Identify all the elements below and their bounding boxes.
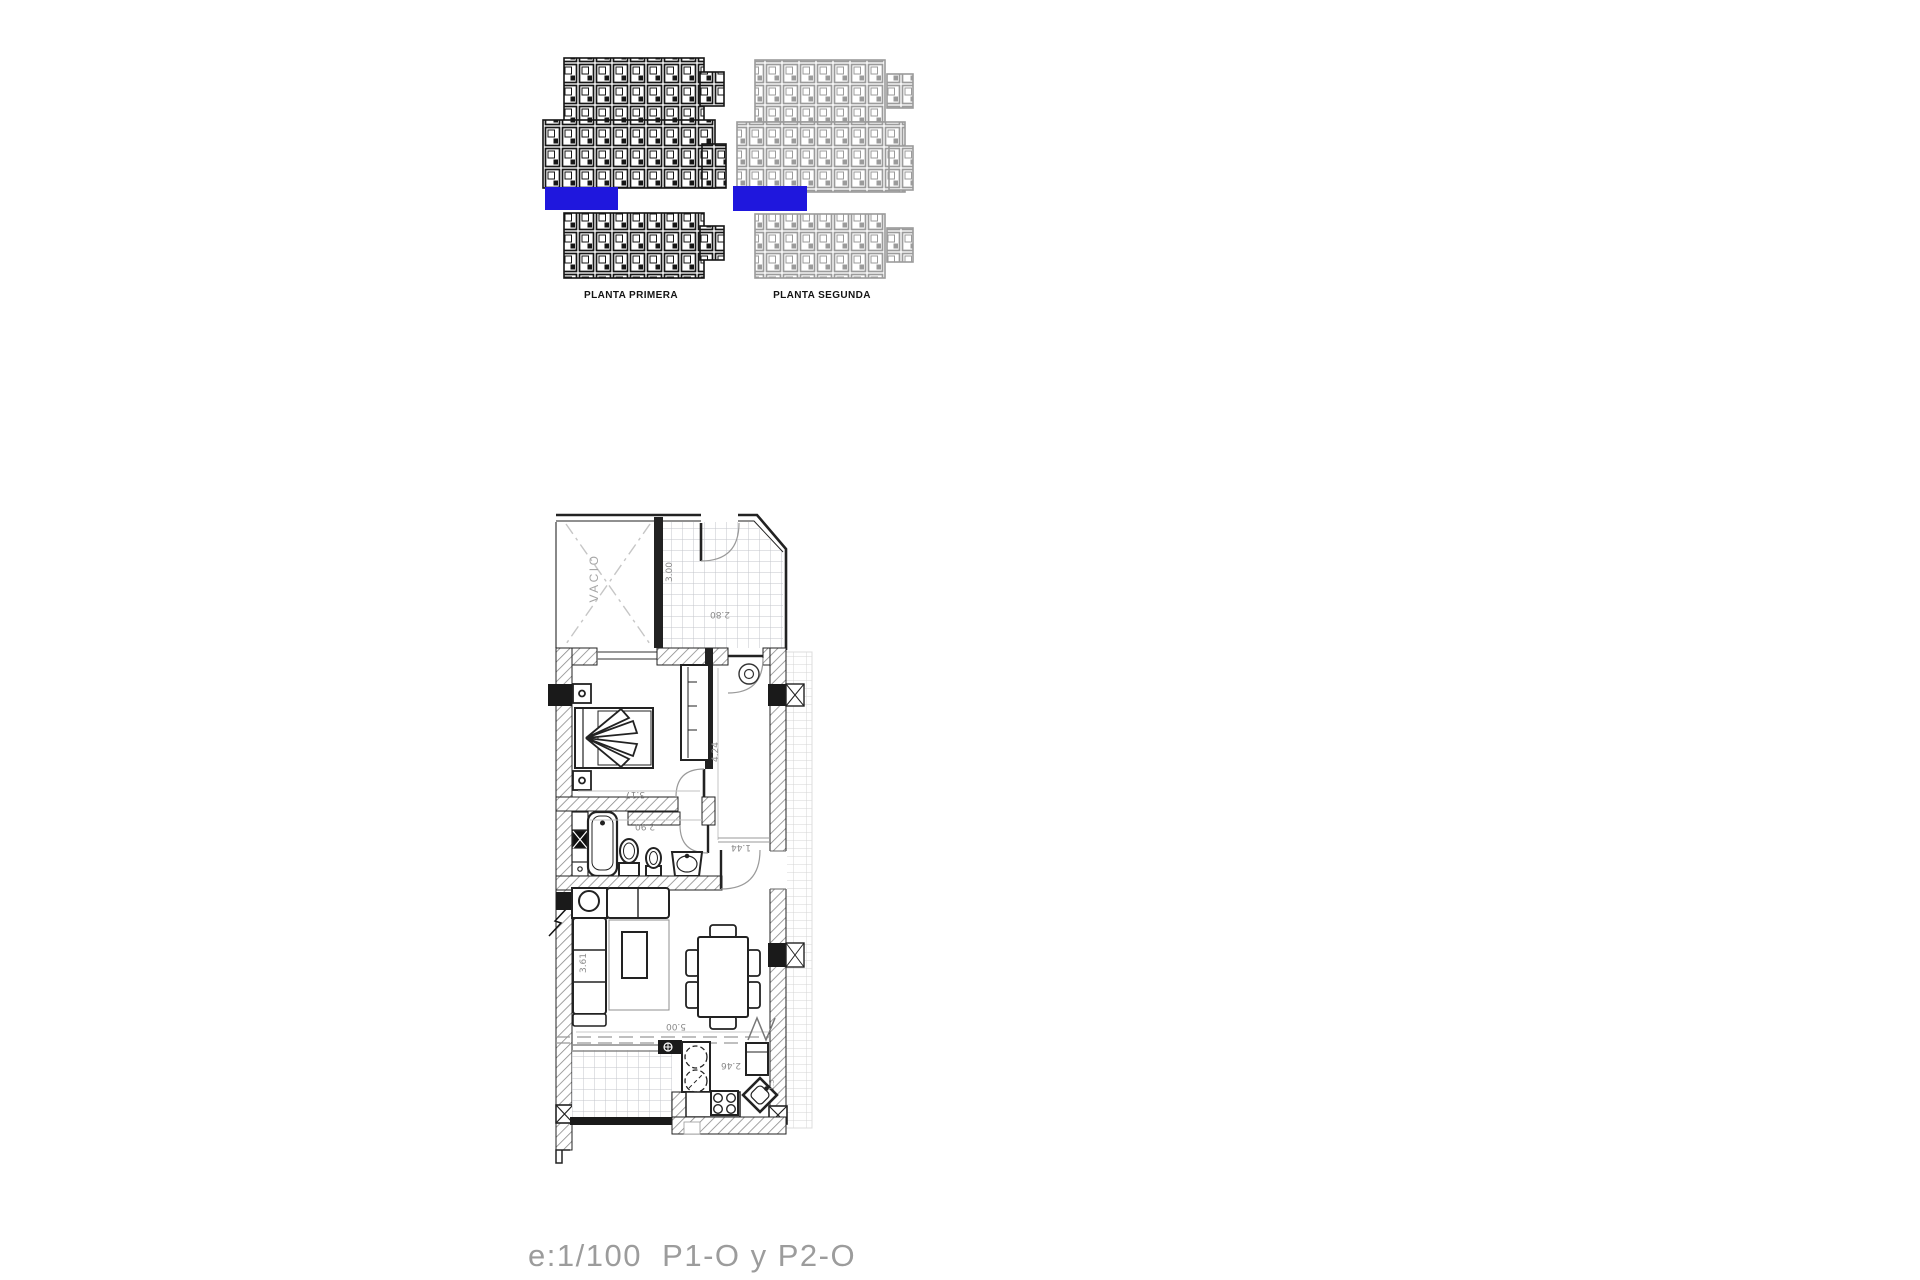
dining-table xyxy=(698,937,748,1017)
bathtub xyxy=(588,812,617,876)
exterior-walkway-tiles xyxy=(786,652,812,1128)
toilet xyxy=(619,839,639,876)
terrace-hall-door-arc xyxy=(728,658,763,693)
caption-planta-segunda: PLANTA SEGUNDA xyxy=(737,290,907,301)
bedroom: 3.17 xyxy=(556,648,715,825)
ceiling-light-icon xyxy=(739,664,759,684)
bidet xyxy=(646,848,661,876)
lower-terrace xyxy=(570,1040,682,1125)
dim-hall-length: 4.24 xyxy=(711,742,721,762)
bathroom-door-arc xyxy=(680,825,708,853)
kitchen: 2.46 1.5 xyxy=(672,1042,786,1134)
floor-plan-drawing: VACIO 3.00 2.80 xyxy=(0,0,1920,1280)
selected-unit-highlight-segunda xyxy=(733,186,807,211)
dim-kitchen-width: 2.46 xyxy=(721,1060,741,1070)
dim-bedroom-width: 3.17 xyxy=(625,789,645,799)
overview-plan-primera xyxy=(543,58,726,278)
caption-planta-primera: PLANTA PRIMERA xyxy=(546,290,716,301)
left-wall-foot-step xyxy=(556,1150,570,1163)
dining-set xyxy=(686,925,760,1029)
vacio-area: VACIO xyxy=(556,522,650,648)
bathroom-shelves xyxy=(572,812,588,876)
vacio-label: VACIO xyxy=(587,554,601,603)
scale-label: e:1/100 P1-O y P2-O xyxy=(528,1238,856,1274)
selected-unit-highlight-primera xyxy=(545,187,618,210)
bedroom-door-arc xyxy=(676,769,704,797)
bathroom: 2.90 xyxy=(556,812,722,890)
dim-bathroom-width: 2.90 xyxy=(635,821,655,831)
dim-terrace-width: 2.80 xyxy=(710,609,730,619)
sink xyxy=(672,852,702,876)
laundry-column xyxy=(682,1042,710,1092)
fridge xyxy=(746,1043,768,1075)
vacio-terrace-divider-wall xyxy=(654,517,663,648)
dim-living-depth: 3.61 xyxy=(579,953,589,973)
coffee-table xyxy=(622,932,647,978)
overview-plan-segunda xyxy=(737,60,913,278)
side-table xyxy=(572,888,607,918)
dim-kitchen-side: 1.5 xyxy=(768,1079,776,1090)
dim-terrace-depth: 3.00 xyxy=(665,562,675,582)
entry-door-arc xyxy=(721,850,760,889)
terrace-bottom-wall xyxy=(570,1117,673,1125)
entry-opening xyxy=(769,851,787,889)
double-bed xyxy=(575,708,653,768)
dim-living-width: 5.00 xyxy=(666,1021,686,1031)
stove xyxy=(711,1091,738,1115)
dim-entry-width: 1.44 xyxy=(731,842,751,852)
living-room: 3.61 5.00 xyxy=(556,888,775,1043)
wardrobe xyxy=(681,665,709,760)
upper-terrace: 3.00 2.80 xyxy=(663,511,783,648)
